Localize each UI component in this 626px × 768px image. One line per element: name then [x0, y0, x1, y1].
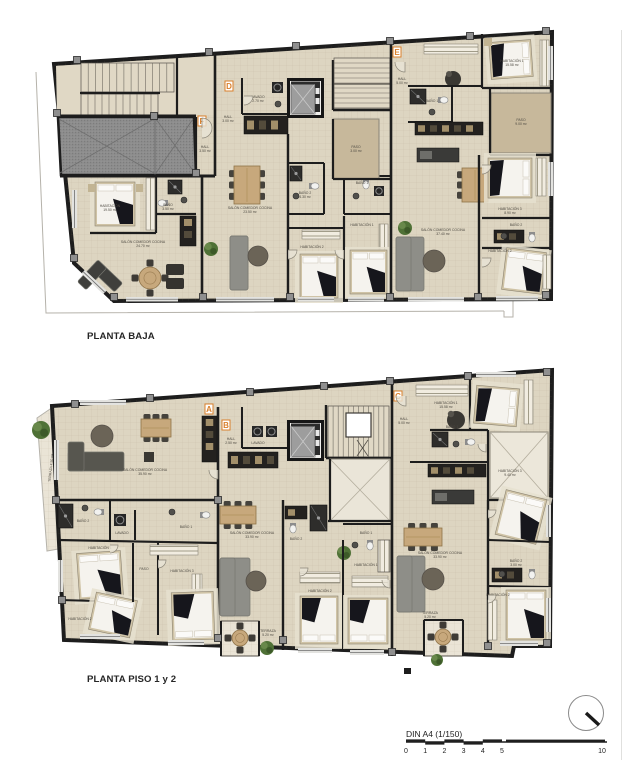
svg-text:DIN A4 (1/150): DIN A4 (1/150) [406, 729, 462, 739]
svg-text:35.90 m²: 35.90 m² [138, 472, 152, 476]
svg-text:10: 10 [598, 748, 606, 755]
svg-text:3.50 m²: 3.50 m² [162, 207, 174, 211]
svg-text:4.30 m²: 4.30 m² [299, 195, 311, 199]
svg-text:9.40 m²: 9.40 m² [504, 473, 516, 477]
svg-text:HABITACIÓN 1: HABITACIÓN 1 [88, 545, 111, 550]
svg-text:1: 1 [423, 748, 427, 755]
svg-text:3.50 m²: 3.50 m² [199, 149, 211, 153]
svg-text:4: 4 [481, 748, 485, 755]
svg-text:A: A [206, 405, 212, 414]
svg-text:BAÑO 2: BAÑO 2 [77, 518, 90, 523]
svg-text:PLANTA BAJA: PLANTA BAJA [87, 331, 155, 342]
svg-text:BAÑO 1: BAÑO 1 [360, 530, 373, 535]
svg-text:24.70 m²: 24.70 m² [136, 244, 150, 248]
svg-text:5.00 m²: 5.00 m² [396, 81, 408, 85]
svg-text:8.90 m²: 8.90 m² [504, 211, 516, 215]
svg-text:15.58 m²: 15.58 m² [439, 405, 453, 409]
svg-text:BAÑO 2: BAÑO 2 [290, 536, 303, 541]
svg-text:PLANTA PISO 1 y 2: PLANTA PISO 1 y 2 [87, 674, 176, 685]
svg-text:HABITACIÓN 2: HABITACIÓN 2 [68, 616, 91, 621]
svg-text:5.20 m²: 5.20 m² [262, 633, 274, 637]
svg-text:D: D [226, 82, 232, 91]
svg-text:BAÑO 1: BAÑO 1 [426, 98, 439, 103]
svg-text:5.00 m²: 5.00 m² [398, 421, 410, 425]
svg-text:HABITACIÓN 1: HABITACIÓN 1 [354, 562, 377, 567]
svg-text:B: B [223, 421, 229, 430]
svg-text:HABITACIÓN 2: HABITACIÓN 2 [308, 588, 331, 593]
svg-text:5.20 m²: 5.20 m² [424, 615, 436, 619]
svg-text:HABITACIÓN 3: HABITACIÓN 3 [170, 568, 193, 573]
svg-text:33.90 m²: 33.90 m² [433, 555, 447, 559]
svg-text:5: 5 [500, 748, 504, 755]
svg-text:23.50 m²: 23.50 m² [243, 210, 257, 214]
svg-text:E: E [394, 48, 400, 57]
svg-text:3: 3 [462, 748, 466, 755]
svg-text:3.00 m²: 3.00 m² [510, 563, 522, 567]
svg-text:2.50 m²: 2.50 m² [225, 441, 237, 445]
svg-text:HABITACIÓN 2: HABITACIÓN 2 [300, 244, 323, 249]
svg-text:0: 0 [404, 748, 408, 755]
svg-text:15.58 m²: 15.58 m² [505, 63, 519, 67]
svg-text:BAÑO 1: BAÑO 1 [356, 180, 369, 185]
svg-text:2: 2 [442, 748, 446, 755]
svg-text:37.40 m²: 37.40 m² [436, 232, 450, 236]
svg-text:9.00 m²: 9.00 m² [515, 122, 527, 126]
svg-text:BAÑO 1: BAÑO 1 [180, 524, 193, 529]
svg-text:LAVADO: LAVADO [115, 531, 129, 535]
svg-text:HABITACIÓN 1: HABITACIÓN 1 [350, 222, 373, 227]
svg-text:HABITACIÓN 2: HABITACIÓN 2 [488, 248, 511, 253]
svg-text:33.90 m²: 33.90 m² [245, 535, 259, 539]
svg-text:2.70 m²: 2.70 m² [252, 99, 264, 103]
svg-text:BAÑO 1: BAÑO 1 [446, 424, 459, 429]
svg-text:LAVADO: LAVADO [251, 441, 265, 445]
svg-text:3.00 m²: 3.00 m² [350, 149, 362, 153]
svg-text:19.50 m²: 19.50 m² [103, 208, 117, 212]
svg-text:BAÑO 2: BAÑO 2 [510, 222, 523, 227]
svg-text:PASO: PASO [139, 567, 149, 571]
svg-text:3.00 m²: 3.00 m² [222, 119, 234, 123]
